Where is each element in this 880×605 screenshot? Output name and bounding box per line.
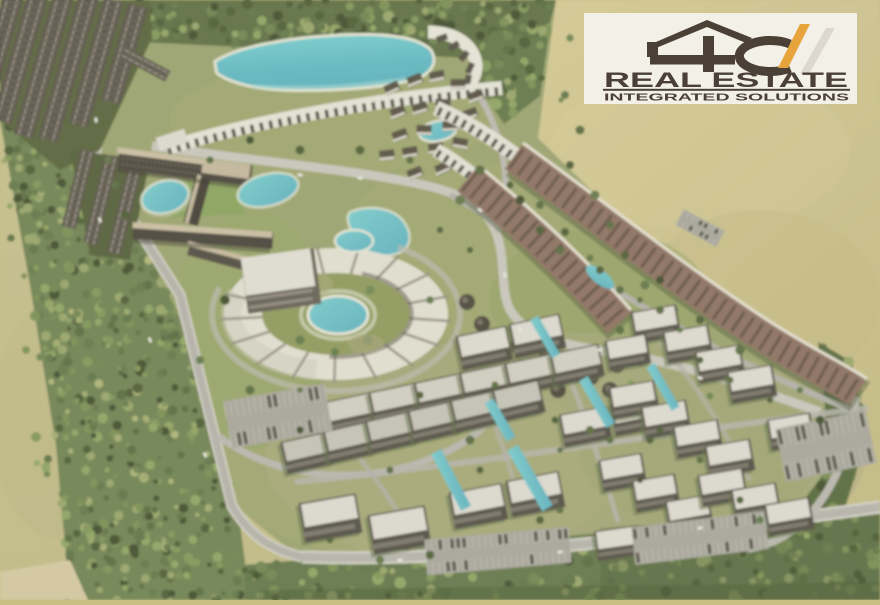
svg-text:INTEGRATED SOLUTIONS: INTEGRATED SOLUTIONS: [604, 92, 849, 104]
svg-text:REAL ESTATE: REAL ESTATE: [604, 68, 848, 92]
